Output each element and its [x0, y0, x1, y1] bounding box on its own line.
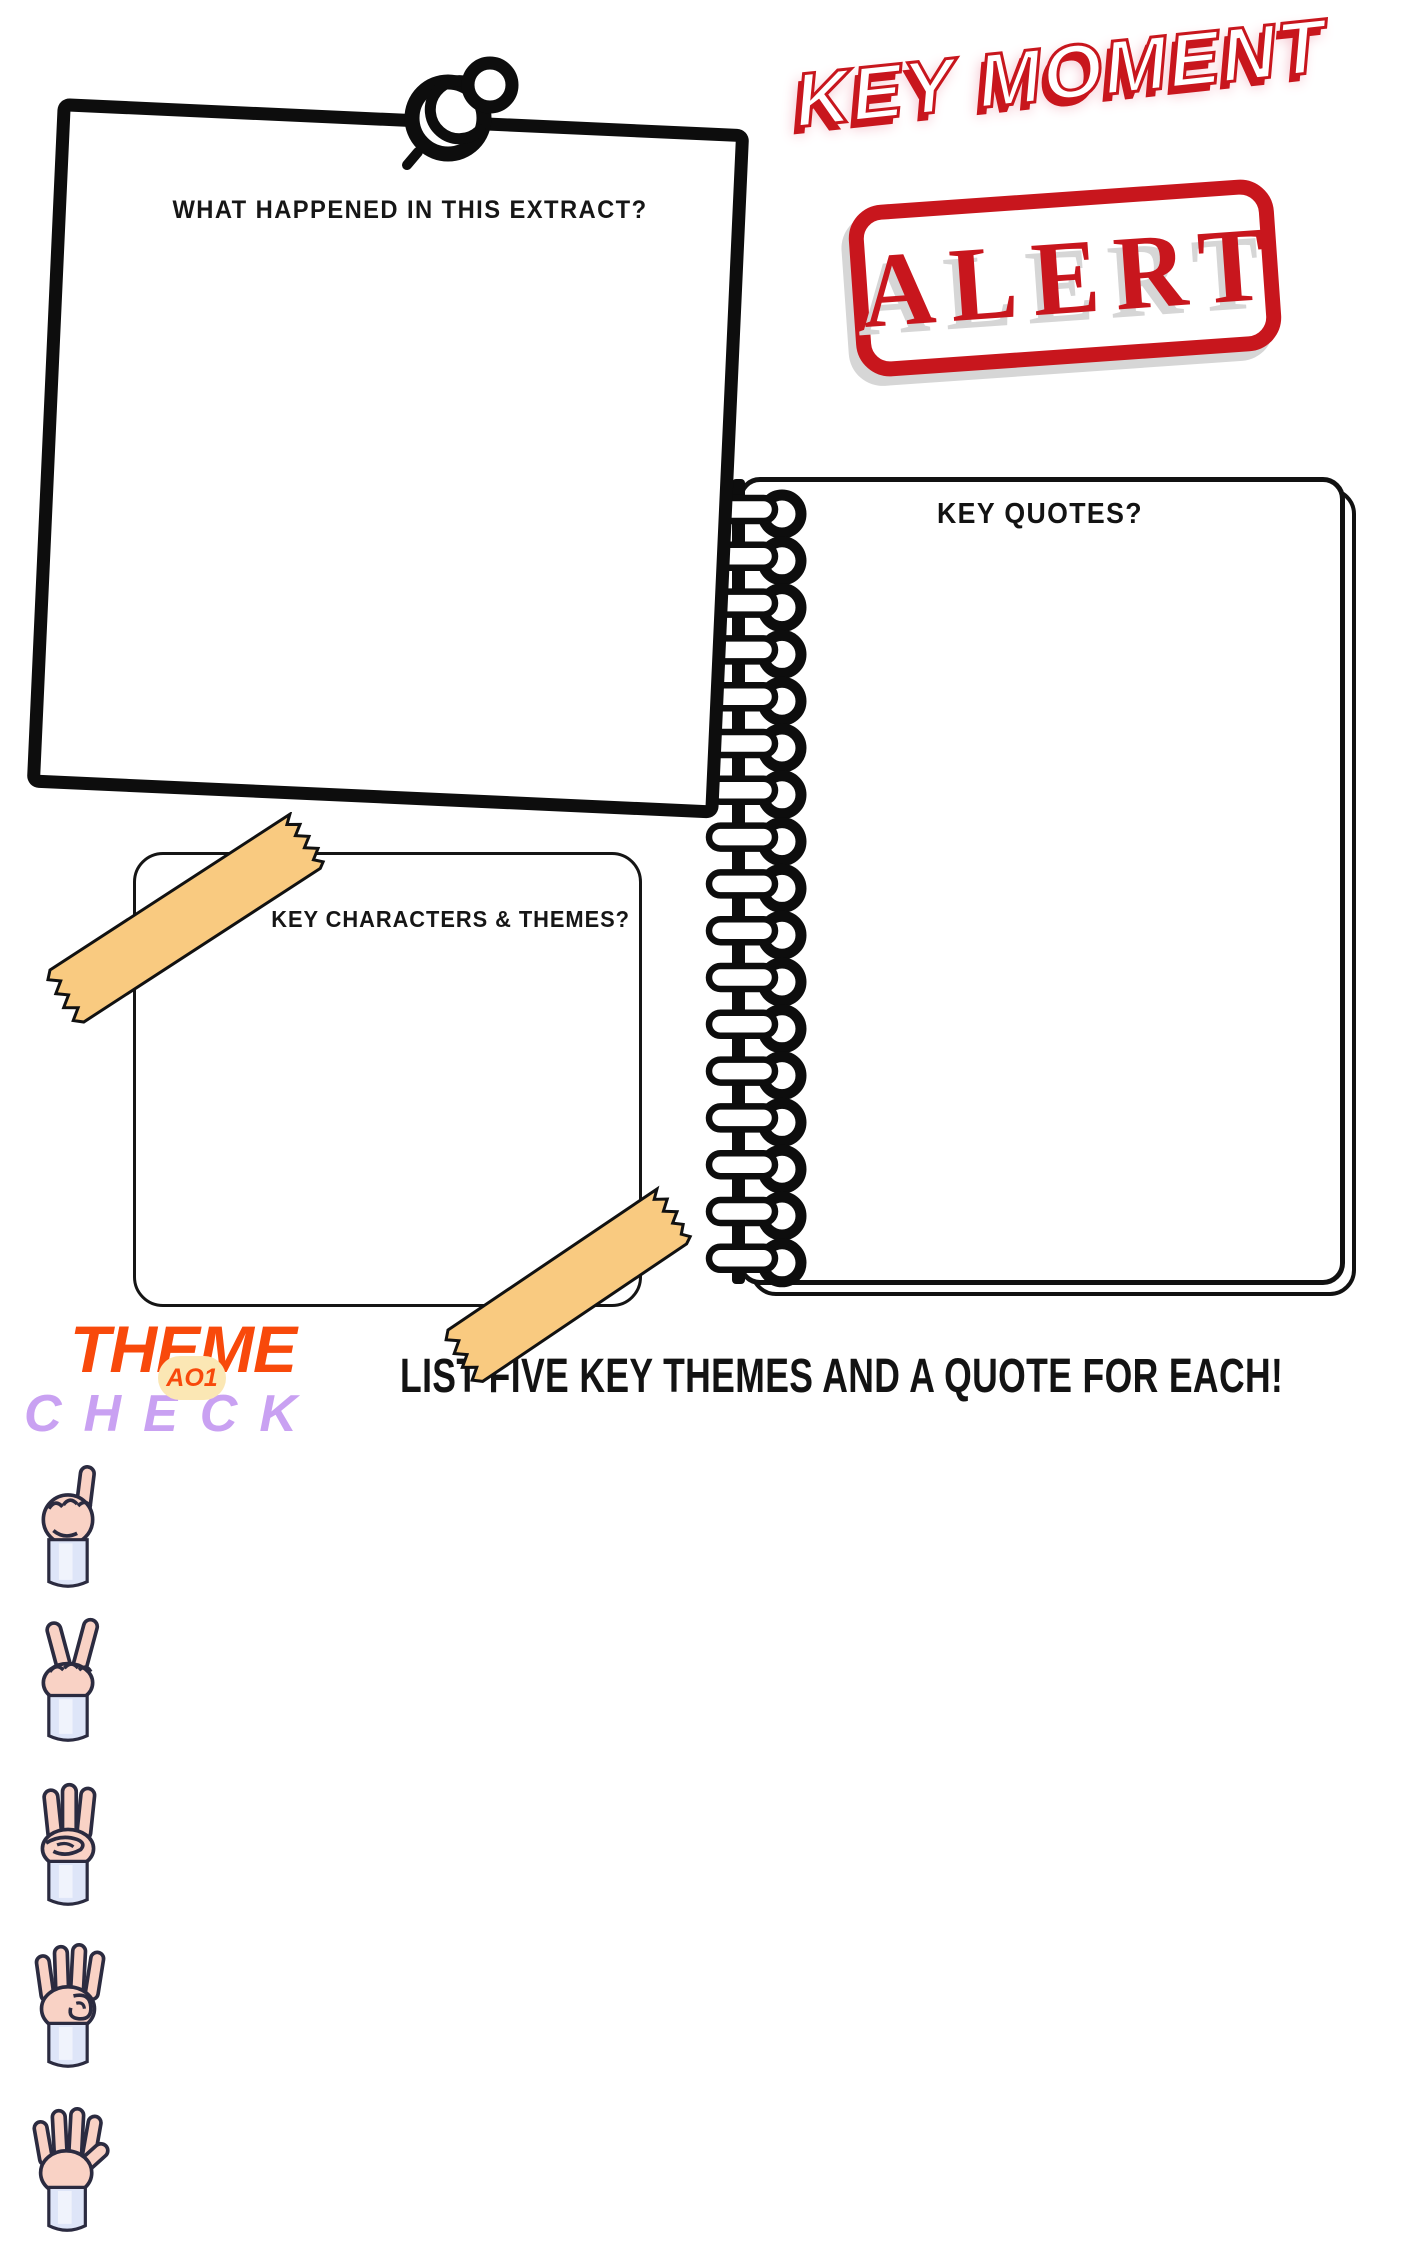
hand-3-fingers-icon	[26, 1774, 110, 1914]
alert-stamp: ALERT	[847, 177, 1284, 378]
extract-box-title: WHAT HAPPENED IN THIS EXTRACT?	[163, 196, 657, 225]
tape-top-left-icon	[34, 812, 364, 1042]
notebook-title: KEY QUOTES?	[819, 498, 1261, 531]
hand-2-fingers-icon	[26, 1610, 110, 1750]
tape-bottom-right-icon	[428, 1150, 728, 1410]
doodle-pin-icon	[390, 40, 530, 172]
hand-5-fingers-icon	[26, 2100, 110, 2240]
hand-1-finger-icon	[26, 1456, 110, 1596]
hand-4-fingers-icon	[26, 1936, 110, 2076]
worksheet-page: KEY QUOTES? WHAT HAPPENED IN THIS EXTRAC…	[0, 0, 1410, 2250]
ao1-badge: AO1	[158, 1356, 226, 1400]
notebook-page	[738, 477, 1345, 1285]
alert-stamp-text: ALERT	[845, 210, 1284, 346]
ao1-badge-text: AO1	[166, 1364, 217, 1393]
key-moment-heading: KEY MOMENT	[790, 0, 1396, 145]
